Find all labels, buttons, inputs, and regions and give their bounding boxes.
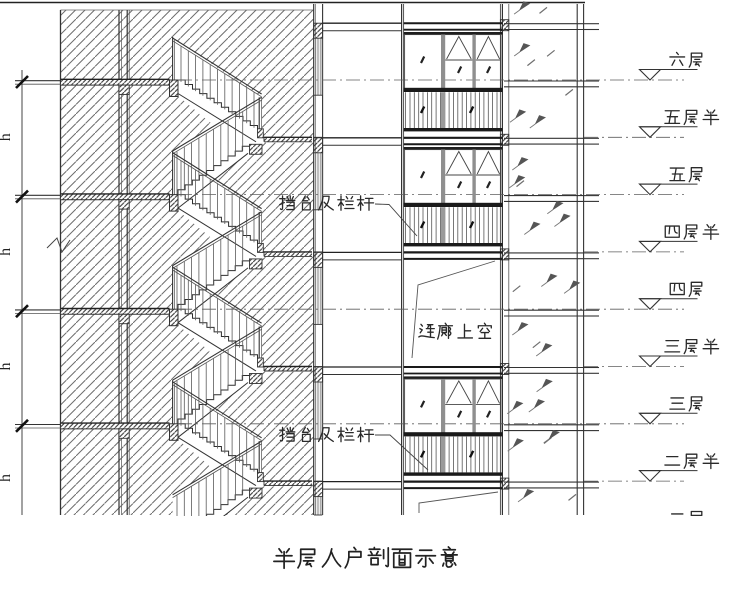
svg-text:h: h (0, 474, 14, 482)
svg-text:h: h (0, 133, 14, 141)
svg-text:h: h (0, 248, 14, 256)
svg-text:h: h (0, 363, 14, 371)
